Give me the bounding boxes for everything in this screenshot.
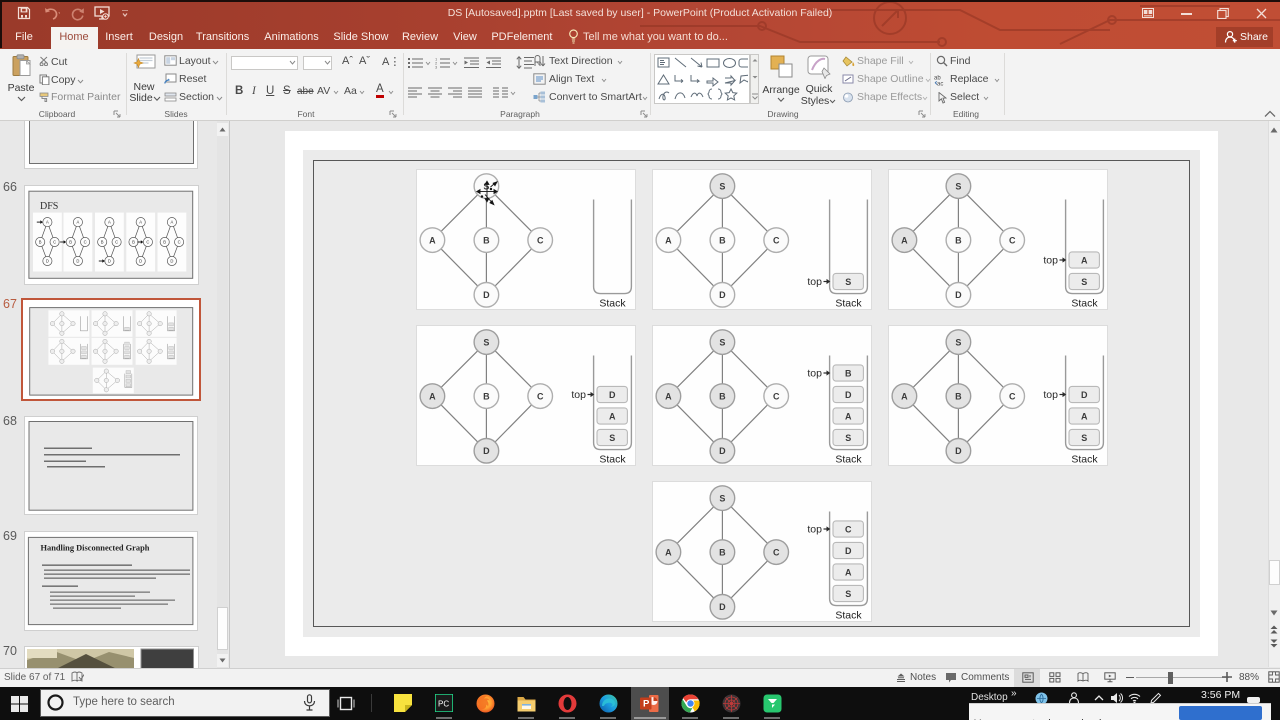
svg-text:D: D xyxy=(108,259,111,264)
svg-text:D: D xyxy=(46,259,49,264)
svg-text:S: S xyxy=(719,182,725,192)
svg-text:B: B xyxy=(483,392,490,402)
svg-text:Stack: Stack xyxy=(835,298,862,310)
svg-text:S: S xyxy=(955,338,961,348)
svg-text:A: A xyxy=(1081,412,1088,422)
svg-text:D: D xyxy=(955,446,962,456)
svg-text:A: A xyxy=(609,412,616,422)
svg-text:A: A xyxy=(845,412,852,422)
svg-text:A: A xyxy=(429,236,436,246)
svg-text:top: top xyxy=(807,524,822,536)
svg-text:top: top xyxy=(1043,389,1058,401)
svg-text:B: B xyxy=(719,548,726,558)
svg-text:C: C xyxy=(83,240,86,245)
svg-text:B: B xyxy=(100,240,103,245)
svg-text:Stack: Stack xyxy=(835,454,862,466)
svg-text:B: B xyxy=(719,236,726,246)
svg-text:Stack: Stack xyxy=(1071,298,1098,310)
svg-text:C: C xyxy=(1009,236,1016,246)
svg-text:P: P xyxy=(643,699,650,710)
svg-text:A: A xyxy=(665,392,672,402)
svg-text:D: D xyxy=(845,546,852,556)
svg-text:Stack: Stack xyxy=(600,298,627,310)
svg-text:C: C xyxy=(115,240,118,245)
svg-text:B: B xyxy=(955,236,962,246)
svg-text:B: B xyxy=(719,392,726,402)
svg-text:S: S xyxy=(719,494,725,504)
svg-text:D: D xyxy=(483,290,490,300)
svg-text:D: D xyxy=(139,259,142,264)
svg-text:top: top xyxy=(807,368,822,380)
svg-text:C: C xyxy=(537,392,544,402)
svg-text:A: A xyxy=(665,236,672,246)
svg-text:C: C xyxy=(146,240,149,245)
svg-text:S: S xyxy=(845,433,851,443)
svg-text:A: A xyxy=(170,220,173,225)
svg-text:A: A xyxy=(665,548,672,558)
svg-text:C: C xyxy=(773,236,780,246)
svg-text:PC: PC xyxy=(438,700,449,709)
svg-text:Handling Disconnected Graph: Handling Disconnected Graph xyxy=(40,543,149,552)
svg-text:Stack: Stack xyxy=(1071,454,1098,466)
svg-text:D: D xyxy=(955,290,962,300)
svg-text:A: A xyxy=(429,392,436,402)
svg-text:S: S xyxy=(719,338,725,348)
svg-text:B: B xyxy=(38,240,41,245)
svg-text:A: A xyxy=(845,568,852,578)
svg-text:D: D xyxy=(1081,390,1088,400)
svg-text:D: D xyxy=(719,446,726,456)
svg-text:Stack: Stack xyxy=(600,454,627,466)
svg-text:B: B xyxy=(845,369,852,379)
svg-text:S: S xyxy=(845,277,851,287)
svg-text:C: C xyxy=(537,236,544,246)
svg-text:B: B xyxy=(955,392,962,402)
svg-text:A: A xyxy=(46,220,49,225)
svg-text:A: A xyxy=(139,220,142,225)
svg-text:Stack: Stack xyxy=(835,610,862,622)
svg-text:S: S xyxy=(1081,277,1087,287)
svg-text:A: A xyxy=(901,392,908,402)
svg-text:B: B xyxy=(69,240,72,245)
svg-text:C: C xyxy=(845,525,852,535)
svg-text:S: S xyxy=(1081,433,1087,443)
svg-text:C: C xyxy=(773,548,780,558)
svg-text:D: D xyxy=(483,446,490,456)
svg-text:S: S xyxy=(955,182,961,192)
svg-text:A: A xyxy=(1081,256,1088,266)
svg-text:D: D xyxy=(845,390,852,400)
svg-text:top: top xyxy=(572,389,587,401)
svg-text:D: D xyxy=(76,259,79,264)
svg-text:C: C xyxy=(773,392,780,402)
svg-text:C: C xyxy=(177,240,180,245)
svg-text:D: D xyxy=(170,259,173,264)
svg-text:A: A xyxy=(76,220,79,225)
svg-text:C: C xyxy=(53,240,56,245)
svg-text:A: A xyxy=(901,236,908,246)
svg-text:B: B xyxy=(132,240,135,245)
svg-text:C: C xyxy=(1009,392,1016,402)
svg-text:D: D xyxy=(609,390,616,400)
svg-text:A: A xyxy=(108,220,111,225)
svg-text:ac: ac xyxy=(937,82,943,87)
svg-text:top: top xyxy=(1043,255,1058,267)
svg-text:3: 3 xyxy=(435,65,438,69)
svg-text:DFS: DFS xyxy=(40,201,58,212)
svg-text:D: D xyxy=(719,602,726,612)
svg-text:S: S xyxy=(845,589,851,599)
svg-text:B: B xyxy=(163,240,166,245)
svg-text:S: S xyxy=(609,433,615,443)
svg-text:D: D xyxy=(719,290,726,300)
svg-text:top: top xyxy=(807,276,822,288)
svg-text:B: B xyxy=(483,236,490,246)
svg-text:S: S xyxy=(484,338,490,348)
